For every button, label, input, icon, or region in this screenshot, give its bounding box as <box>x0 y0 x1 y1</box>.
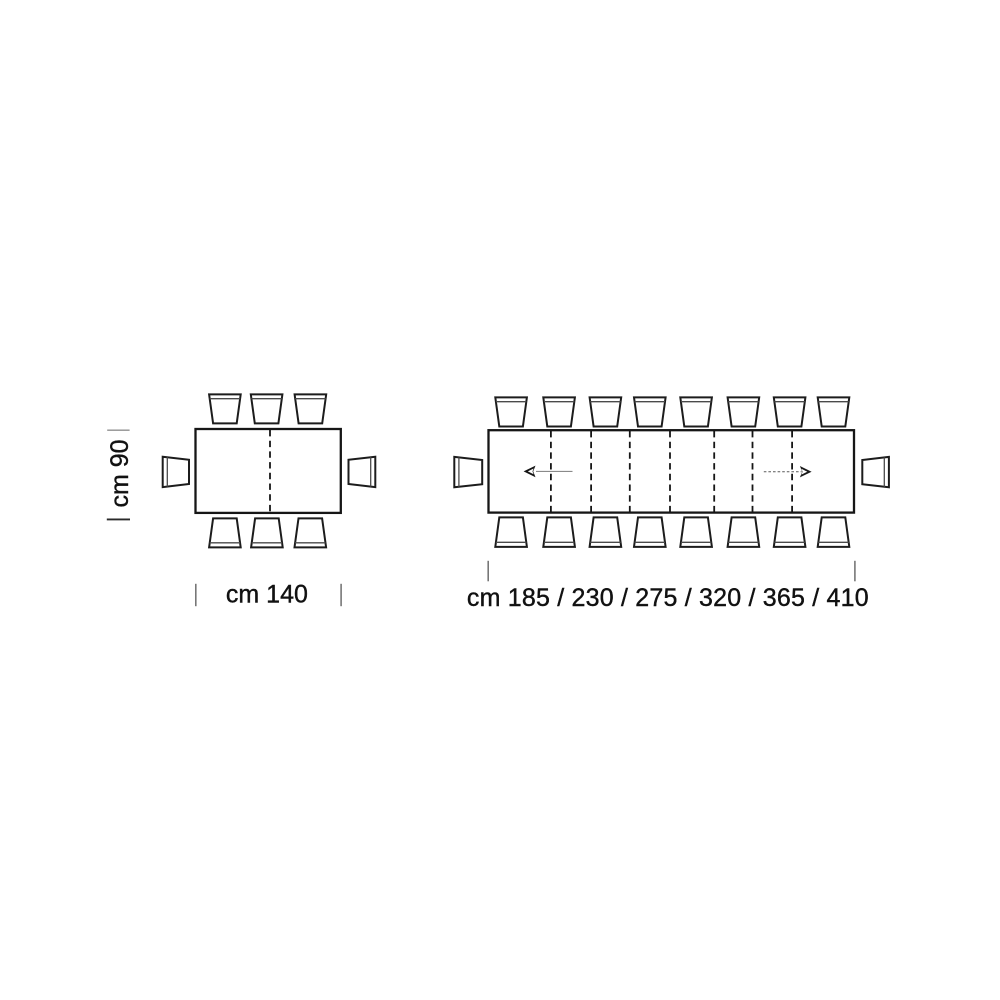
svg-text:cm 140: cm 140 <box>226 581 308 609</box>
svg-text:cm 90: cm 90 <box>106 439 134 507</box>
svg-text:cm 185 / 230 / 275 / 320 / 365: cm 185 / 230 / 275 / 320 / 365 / 410 <box>467 584 869 612</box>
